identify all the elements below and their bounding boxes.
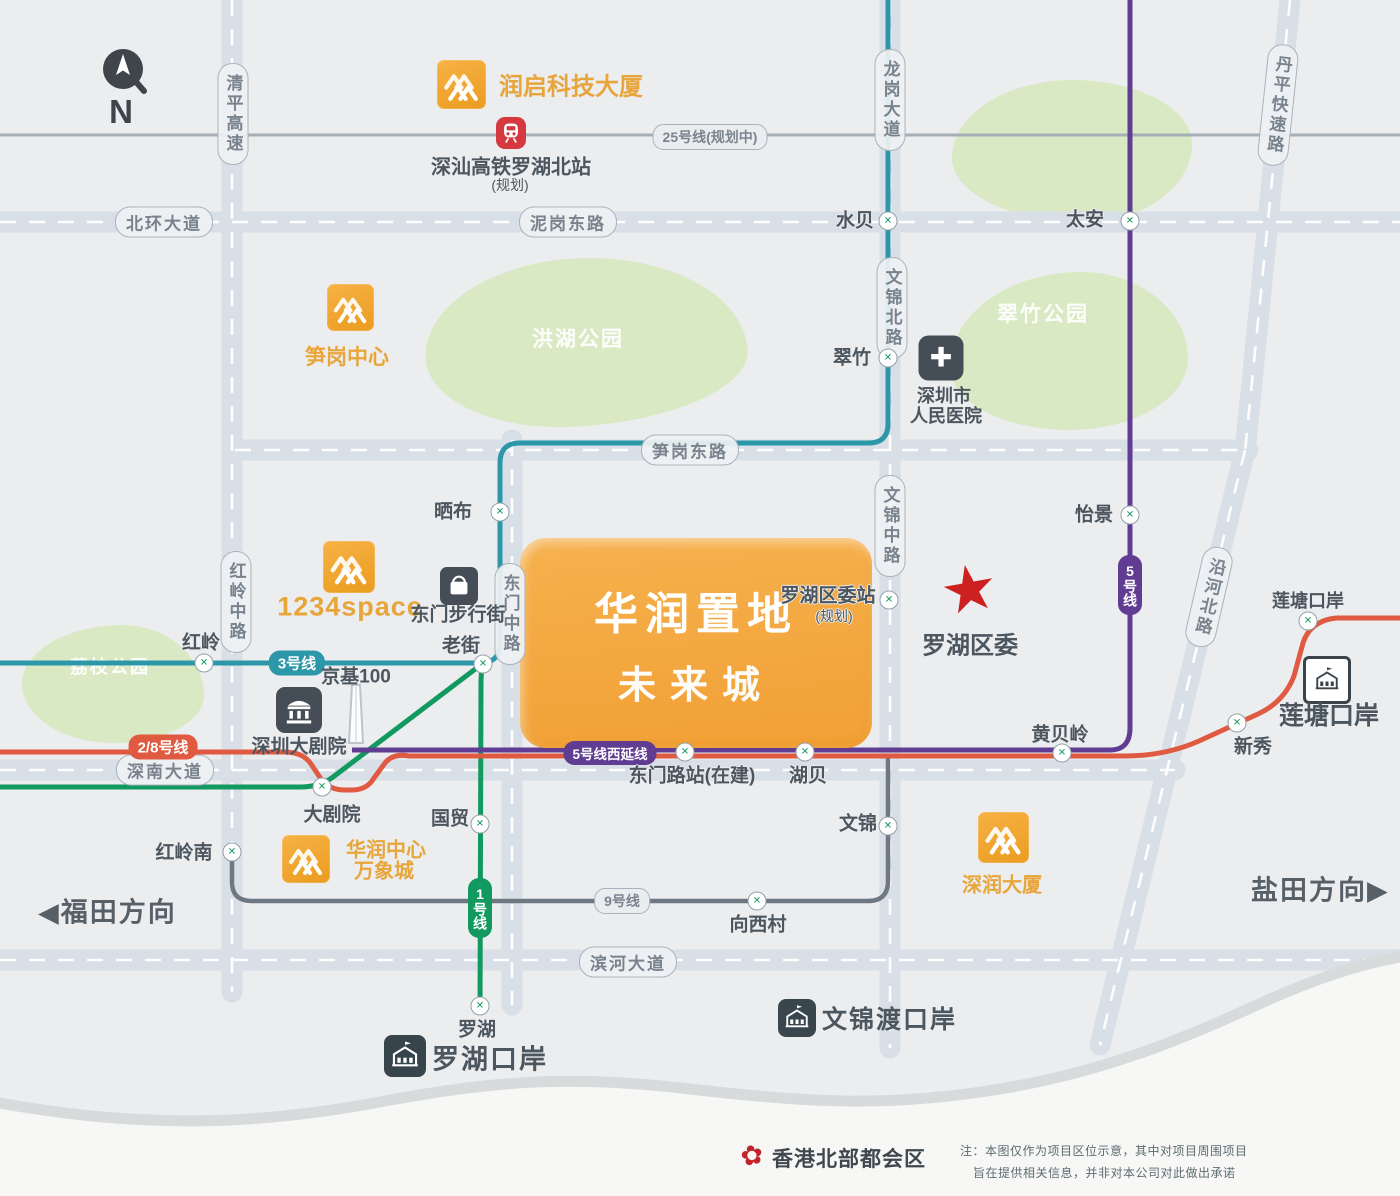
station-icon-xinxiu — [1228, 714, 1247, 733]
station-icon-dongmenlu — [676, 743, 695, 762]
line-badge-3: 3号线 — [269, 651, 325, 676]
station-icon-liantang-port — [1299, 612, 1318, 631]
project-name: 华润置地 — [594, 578, 798, 642]
park-lizhi — [22, 625, 204, 743]
direction-yantian-label: 盐田方向 — [1251, 876, 1367, 906]
park-label: 荔枝公园 — [70, 653, 150, 679]
landmark-1234space: 1234space — [277, 592, 423, 623]
line-badge-1: 1号线 — [468, 878, 492, 938]
station-label: 新秀 — [1234, 732, 1272, 759]
landmark-sungang-center: 笋岗中心 — [305, 341, 389, 371]
station-label: 东门路站(在建) — [629, 761, 756, 788]
landmark-mixc-line2: 万象城 — [354, 855, 414, 884]
hk-northern-metropolis-label: 香港北部都会区 — [772, 1143, 926, 1173]
station-icon-guomao — [471, 815, 490, 834]
road-label-longgang: 龙岗大道 — [875, 49, 906, 151]
location-map: 洪湖公园 翠竹公园 荔枝公园 华润置地 未来城 — [0, 0, 1400, 1196]
landmark-shenrun-tower: 深润大厦 — [962, 869, 1042, 898]
road-yanhe-north — [1100, 450, 1245, 1045]
road-label-wenjin-north: 文锦北路 — [877, 257, 908, 359]
station-label-sub: (规划) — [815, 606, 852, 626]
park-label: 洪湖公园 — [532, 323, 624, 353]
cr-logo-icon — [978, 812, 1029, 863]
cr-logo-icon — [437, 60, 486, 109]
station-icon-hongling — [195, 654, 214, 673]
station-icon-taian — [1121, 212, 1140, 231]
pedestrian-street-label: 东门步行街 — [410, 600, 505, 627]
road-label-yanhe: 沿河北路 — [1182, 544, 1235, 650]
port-label-luohu: 罗湖口岸 — [432, 1038, 548, 1077]
rail-station-icon — [496, 117, 526, 149]
left-arrow-icon: ◀ — [38, 898, 61, 928]
road-label-hongling: 红岭中路 — [221, 551, 252, 653]
station-label: 黄贝岭 — [1031, 720, 1088, 747]
station-label: 罗湖 — [458, 1015, 496, 1042]
station-label: 水贝 — [836, 206, 874, 233]
station-icon-hubei — [796, 743, 815, 762]
cr-logo-icon — [327, 284, 374, 331]
station-icon-shaibu — [491, 503, 510, 522]
compass-icon — [96, 44, 150, 98]
road-label-qingping: 清平高速 — [218, 63, 249, 165]
park-cuizhu — [950, 272, 1188, 430]
landmark-runqi-tower: 润启科技大厦 — [499, 67, 643, 102]
disclaimer-line1: 注：本图仅作为项目区位示意，其中对项目周围项目 — [960, 1142, 1248, 1159]
station-label: 老街 — [442, 631, 480, 658]
shenzhen-river-shoreline — [0, 957, 1400, 1121]
line-badge-5: 5号线 — [1118, 555, 1142, 615]
park-label: 翠竹公园 — [997, 298, 1089, 328]
station-icon-xiangxicun — [748, 892, 767, 911]
station-label: 湖贝 — [789, 761, 827, 788]
project-subname: 未来城 — [618, 654, 774, 709]
line-badge-9: 9号线 — [594, 888, 650, 914]
park-unnamed — [952, 80, 1192, 222]
station-icon-shuibei — [879, 212, 898, 231]
cr-logo-icon — [323, 541, 375, 593]
theater-label: 深圳大剧院 — [251, 732, 346, 759]
hospital-label-line2: 人民医院 — [910, 402, 982, 428]
bauhinia-flower-icon — [738, 1138, 767, 1173]
road-label-nigang: 泥岗东路 — [519, 207, 617, 238]
hospital-icon: ✚ — [919, 336, 964, 381]
line-badge-25: 25号线(规划中) — [653, 124, 768, 150]
road-label-wenjin-mid: 文锦中路 — [875, 475, 906, 577]
station-label: 莲塘口岸 — [1272, 587, 1344, 613]
station-label: 红岭南 — [155, 838, 212, 865]
district-committee-label: 罗湖区委 — [922, 626, 1018, 661]
road-label-beihuan: 北环大道 — [115, 207, 213, 238]
road-label-sungang: 笋岗东路 — [641, 435, 739, 466]
port-building-icon — [778, 999, 816, 1037]
station-label: 大剧院 — [303, 800, 360, 827]
station-icon-luohu-district — [880, 591, 899, 610]
road-label-danping: 丹平快速路 — [1256, 43, 1300, 168]
station-label: 罗湖区委站 — [780, 581, 875, 608]
station-label: 怡景 — [1075, 500, 1113, 527]
theater-icon — [276, 687, 322, 733]
direction-futian-label: 福田方向 — [61, 898, 177, 928]
station-label: 晒布 — [434, 497, 472, 524]
station-label: 红岭 — [182, 628, 220, 655]
port-label-liantang: 莲塘口岸 — [1279, 696, 1379, 732]
hk-area-fill — [0, 957, 1400, 1196]
station-label: 文锦 — [839, 809, 877, 836]
line-badge-2-8: 2/8号线 — [129, 735, 198, 760]
station-icon-yijing — [1121, 506, 1140, 525]
kk100-tower-icon — [344, 683, 368, 745]
station-label: 翠竹 — [833, 343, 871, 370]
disclaimer-line2: 旨在提供相关信息，并非对本公司对此做出承诺 — [973, 1164, 1236, 1181]
direction-futian: ◀福田方向 — [38, 891, 177, 930]
rail-station-sub: (规划) — [491, 175, 528, 195]
kk100-label: 京基100 — [321, 662, 391, 689]
project-star-icon: ★ — [935, 553, 1003, 626]
station-label: 向西村 — [729, 910, 786, 937]
road-label-binhe: 滨河大道 — [579, 947, 677, 978]
station-icon-cuizhu — [879, 349, 898, 368]
direction-yantian: 盐田方向▶ — [1251, 869, 1390, 908]
port-label-wenjindu: 文锦渡口岸 — [822, 1000, 957, 1036]
station-icon-honglingnan — [223, 843, 242, 862]
station-icon-luohu — [471, 997, 490, 1016]
right-arrow-icon: ▶ — [1367, 876, 1390, 906]
cr-logo-icon — [282, 835, 330, 883]
compass-north-label: N — [109, 93, 133, 131]
station-label: 太安 — [1066, 205, 1104, 232]
station-icon-dajuyuan — [313, 778, 332, 797]
port-building-icon — [384, 1035, 426, 1077]
project-block: 华润置地 未来城 — [520, 538, 872, 748]
station-label: 国贸 — [431, 804, 469, 831]
station-icon-wenjin — [879, 817, 898, 836]
